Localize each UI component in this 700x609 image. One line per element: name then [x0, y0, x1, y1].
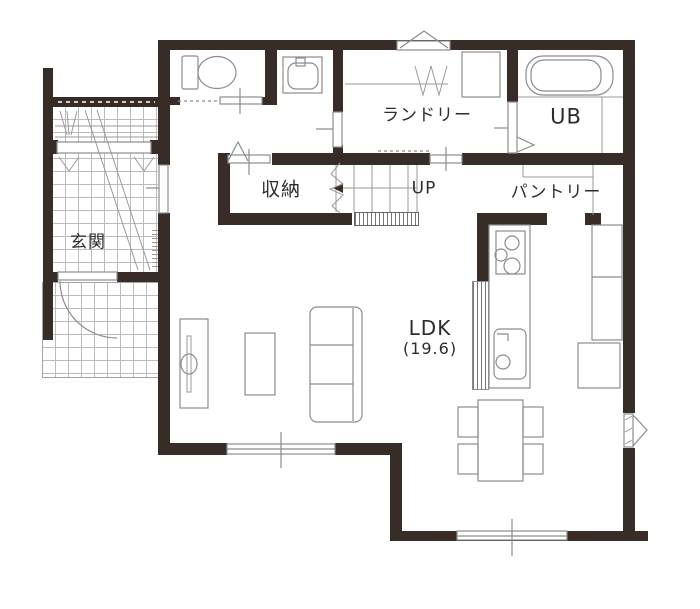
refrigerator-icon	[578, 343, 620, 388]
dining-window	[457, 519, 567, 556]
living-table-icon	[245, 333, 275, 395]
room-label-storage: 収納	[261, 181, 301, 200]
tv-board-icon	[180, 319, 208, 408]
washing-machine-pan-icon	[462, 52, 500, 97]
washbasin-icon	[283, 57, 322, 93]
washroom-laundry-door	[316, 112, 342, 147]
room-label-bath: UB	[550, 107, 582, 128]
room-label-ldk: LDK	[409, 318, 452, 338]
floorplan: 玄関 収納 UP ランドリー UB パントリー LDK (19.6)	[0, 0, 700, 609]
room-label-ldk-area: (19.6)	[403, 341, 457, 357]
genkan-closet	[55, 111, 158, 171]
storage-door	[228, 142, 270, 175]
room-label-stairs-up: UP	[412, 181, 437, 198]
genkan-hall-door	[146, 165, 168, 213]
chair-icon	[458, 407, 543, 474]
toilet-sliding-door	[178, 88, 262, 114]
sofa-icon	[310, 307, 362, 422]
cupboard-icon	[592, 225, 622, 340]
kitchen-sink-icon	[494, 329, 526, 379]
floorplan-drawing	[0, 0, 700, 609]
terrace-door	[624, 414, 647, 447]
toilet-icon	[182, 56, 236, 89]
bath-door	[494, 102, 534, 153]
room-label-pantry: パントリー	[511, 185, 602, 202]
entrance-door	[58, 272, 117, 338]
vent-triangle-icon	[397, 31, 450, 50]
room-label-genkan: 玄関	[70, 235, 106, 252]
living-window	[227, 432, 335, 468]
stairs-icon	[330, 163, 417, 213]
gas-stove-icon	[495, 231, 525, 274]
room-label-laundry: ランドリー	[382, 108, 472, 125]
hanger-pipe-icon	[345, 66, 448, 95]
dining-table-icon	[478, 400, 523, 481]
